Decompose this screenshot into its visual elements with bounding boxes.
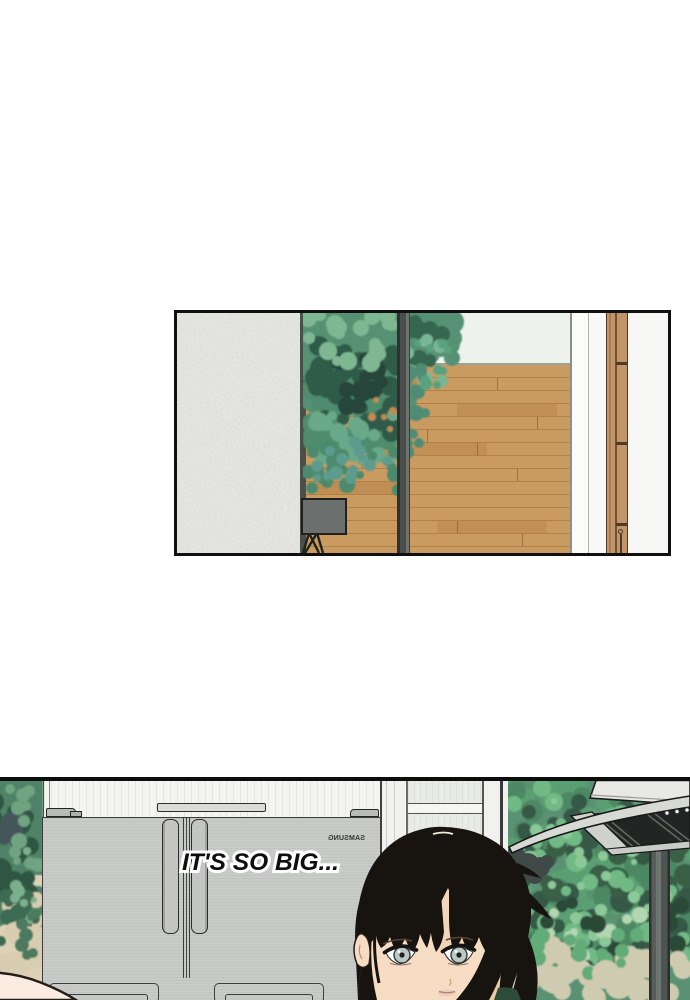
svg-text:IT'S SO BIG...: IT'S SO BIG... — [182, 849, 339, 876]
